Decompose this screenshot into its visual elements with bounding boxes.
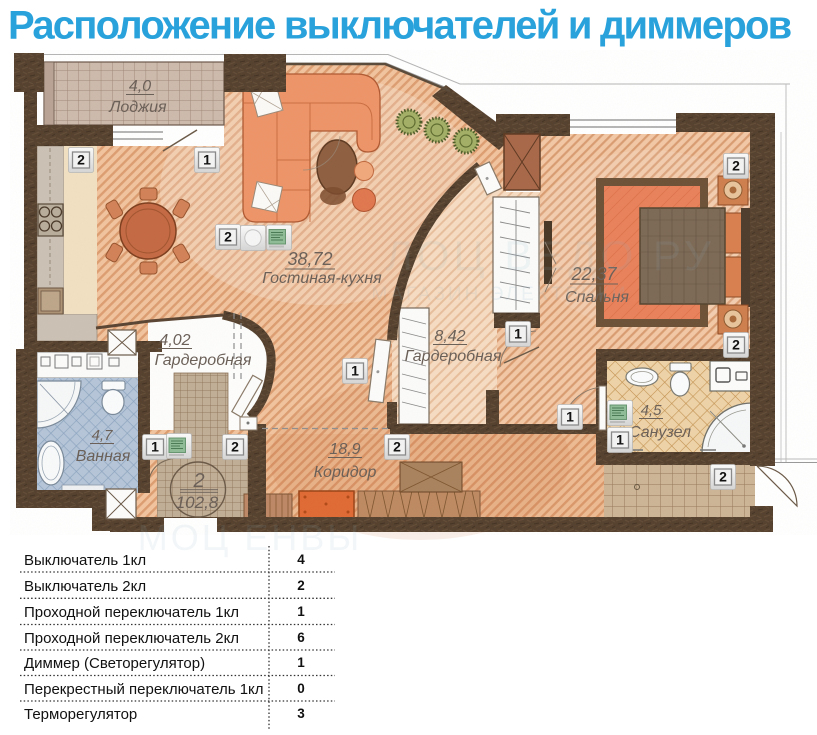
- svg-text:Перекрестный переключатель 1кл: Перекрестный переключатель 1кл: [24, 681, 264, 698]
- svg-text:Проходной переключатель 1кл: Проходной переключатель 1кл: [24, 604, 239, 621]
- svg-text:4: 4: [297, 552, 305, 567]
- svg-text:6: 6: [297, 630, 305, 645]
- svg-text:3: 3: [297, 706, 305, 721]
- svg-text:Диммер (Светорегулятор): Диммер (Светорегулятор): [24, 655, 205, 672]
- svg-text:Терморегулятор: Терморегулятор: [24, 706, 137, 723]
- svg-text:2: 2: [297, 578, 305, 593]
- svg-text:Проходной переключатель 2кл: Проходной переключатель 2кл: [24, 630, 239, 647]
- svg-text:Выключатель 1кл: Выключатель 1кл: [24, 552, 146, 569]
- svg-text:1: 1: [297, 604, 305, 619]
- svg-text:Расположение выключателей и ди: Расположение выключателей и диммеров: [8, 4, 792, 48]
- svg-text:0: 0: [297, 681, 305, 696]
- svg-text:Выключатель 2кл: Выключатель 2кл: [24, 578, 146, 595]
- svg-text:1: 1: [297, 655, 305, 670]
